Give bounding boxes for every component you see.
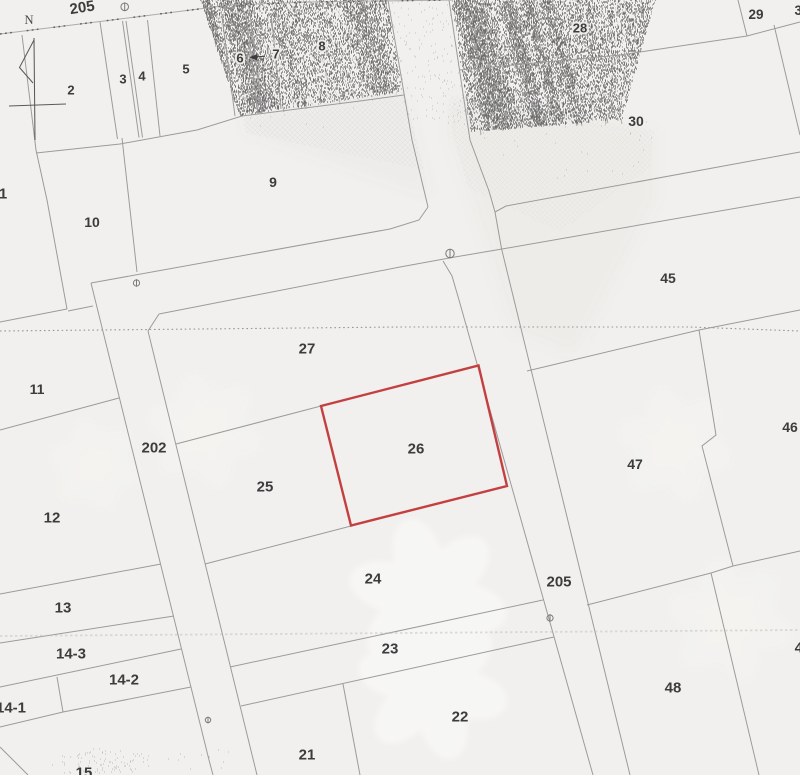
svg-text:1: 1 <box>0 185 7 202</box>
svg-text:N: N <box>24 13 33 27</box>
svg-text:15: 15 <box>76 764 93 775</box>
svg-text:45: 45 <box>660 270 676 286</box>
svg-text:5: 5 <box>182 62 189 77</box>
svg-text:25: 25 <box>257 478 274 495</box>
svg-text:14-2: 14-2 <box>109 671 139 688</box>
svg-text:8: 8 <box>318 39 325 54</box>
svg-text:28: 28 <box>573 21 587 36</box>
svg-text:7: 7 <box>272 47 279 62</box>
svg-text:14-3: 14-3 <box>56 645 86 662</box>
svg-text:4: 4 <box>138 69 146 84</box>
svg-text:27: 27 <box>299 340 316 357</box>
svg-text:13: 13 <box>55 599 72 616</box>
svg-text:12: 12 <box>44 509 61 526</box>
svg-text:23: 23 <box>382 640 399 657</box>
svg-text:6: 6 <box>236 51 243 66</box>
svg-text:2: 2 <box>67 83 74 98</box>
svg-text:49: 49 <box>795 639 800 656</box>
svg-text:3: 3 <box>119 72 126 87</box>
svg-text:26: 26 <box>408 440 425 457</box>
svg-text:202: 202 <box>141 439 166 456</box>
svg-text:47: 47 <box>627 456 643 472</box>
svg-text:22: 22 <box>452 708 469 725</box>
svg-text:14-1: 14-1 <box>0 699 26 716</box>
svg-text:29: 29 <box>748 7 763 22</box>
svg-text:205: 205 <box>546 573 571 590</box>
svg-text:10: 10 <box>84 214 100 230</box>
svg-text:31: 31 <box>794 3 800 18</box>
svg-text:46: 46 <box>782 419 798 435</box>
svg-text:30: 30 <box>628 113 644 129</box>
svg-text:9: 9 <box>269 174 277 190</box>
svg-text:11: 11 <box>30 381 45 397</box>
svg-text:24: 24 <box>365 570 382 587</box>
svg-text:48: 48 <box>665 679 682 696</box>
svg-text:21: 21 <box>299 746 316 763</box>
